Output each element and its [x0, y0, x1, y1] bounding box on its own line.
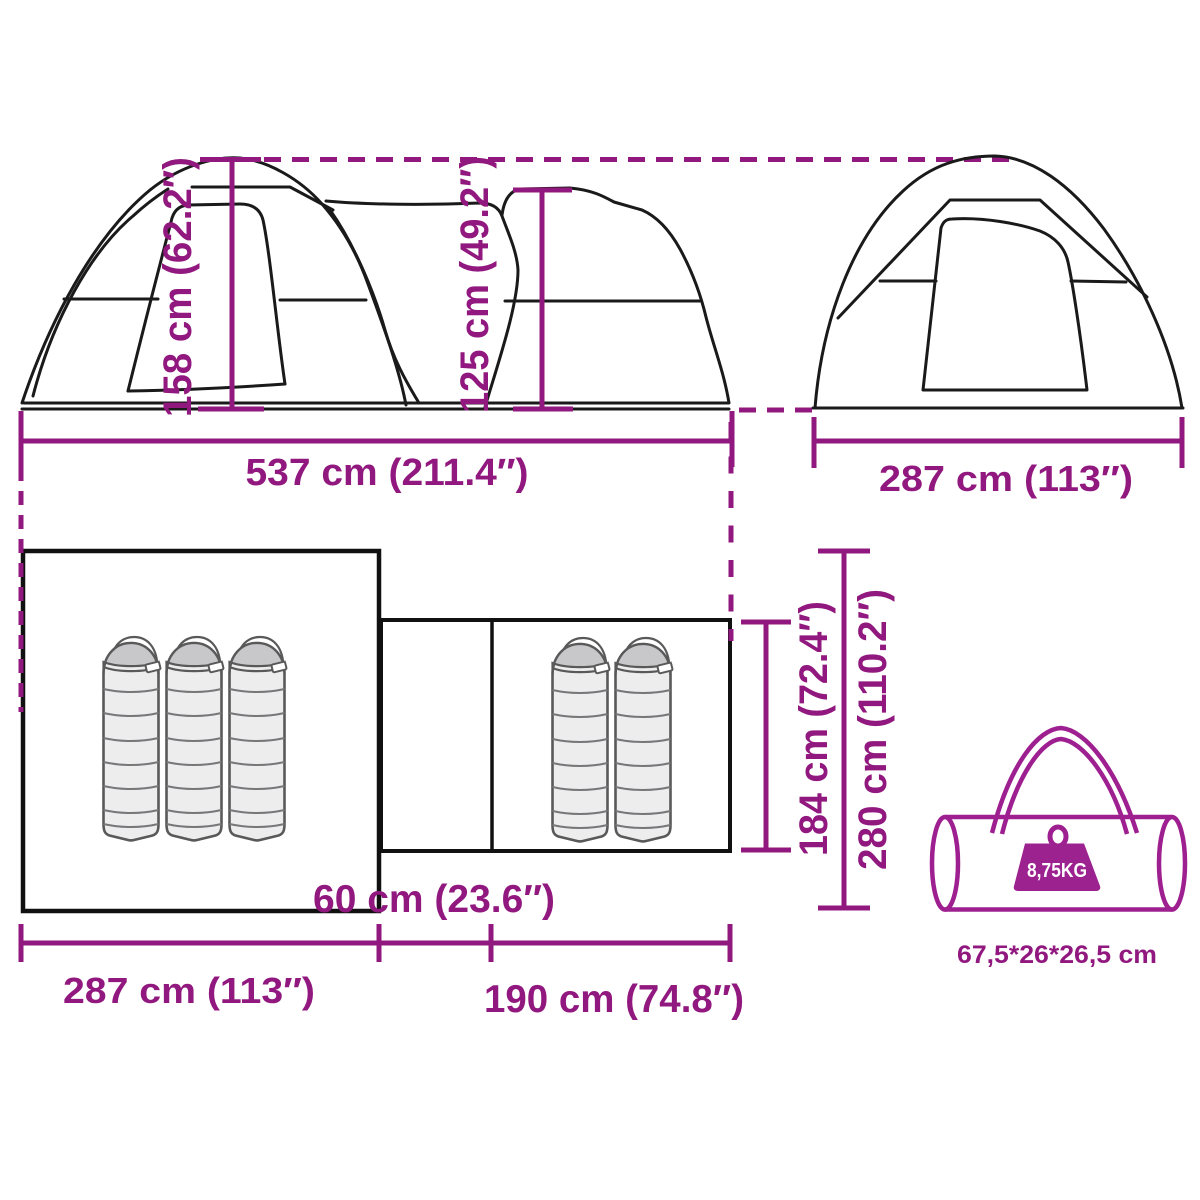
svg-text:60 cm (23.6″): 60 cm (23.6″)	[313, 878, 555, 921]
svg-text:8,75KG: 8,75KG	[1027, 860, 1087, 882]
svg-text:184 cm (72.4″): 184 cm (72.4″)	[792, 601, 836, 856]
svg-text:190 cm (74.8″): 190 cm (74.8″)	[484, 978, 744, 1021]
svg-text:125 cm (49.2″): 125 cm (49.2″)	[453, 156, 497, 413]
svg-text:537 cm (211.4″): 537 cm (211.4″)	[246, 452, 529, 494]
svg-text:280 cm (110.2″): 280 cm (110.2″)	[851, 589, 895, 870]
svg-text:158 cm (62.2″): 158 cm (62.2″)	[156, 157, 200, 417]
svg-text:287 cm (113″): 287 cm (113″)	[879, 458, 1133, 499]
svg-text:67,5*26*26,5 cm: 67,5*26*26,5 cm	[957, 941, 1157, 969]
svg-text:287 cm (113″): 287 cm (113″)	[63, 970, 315, 1011]
